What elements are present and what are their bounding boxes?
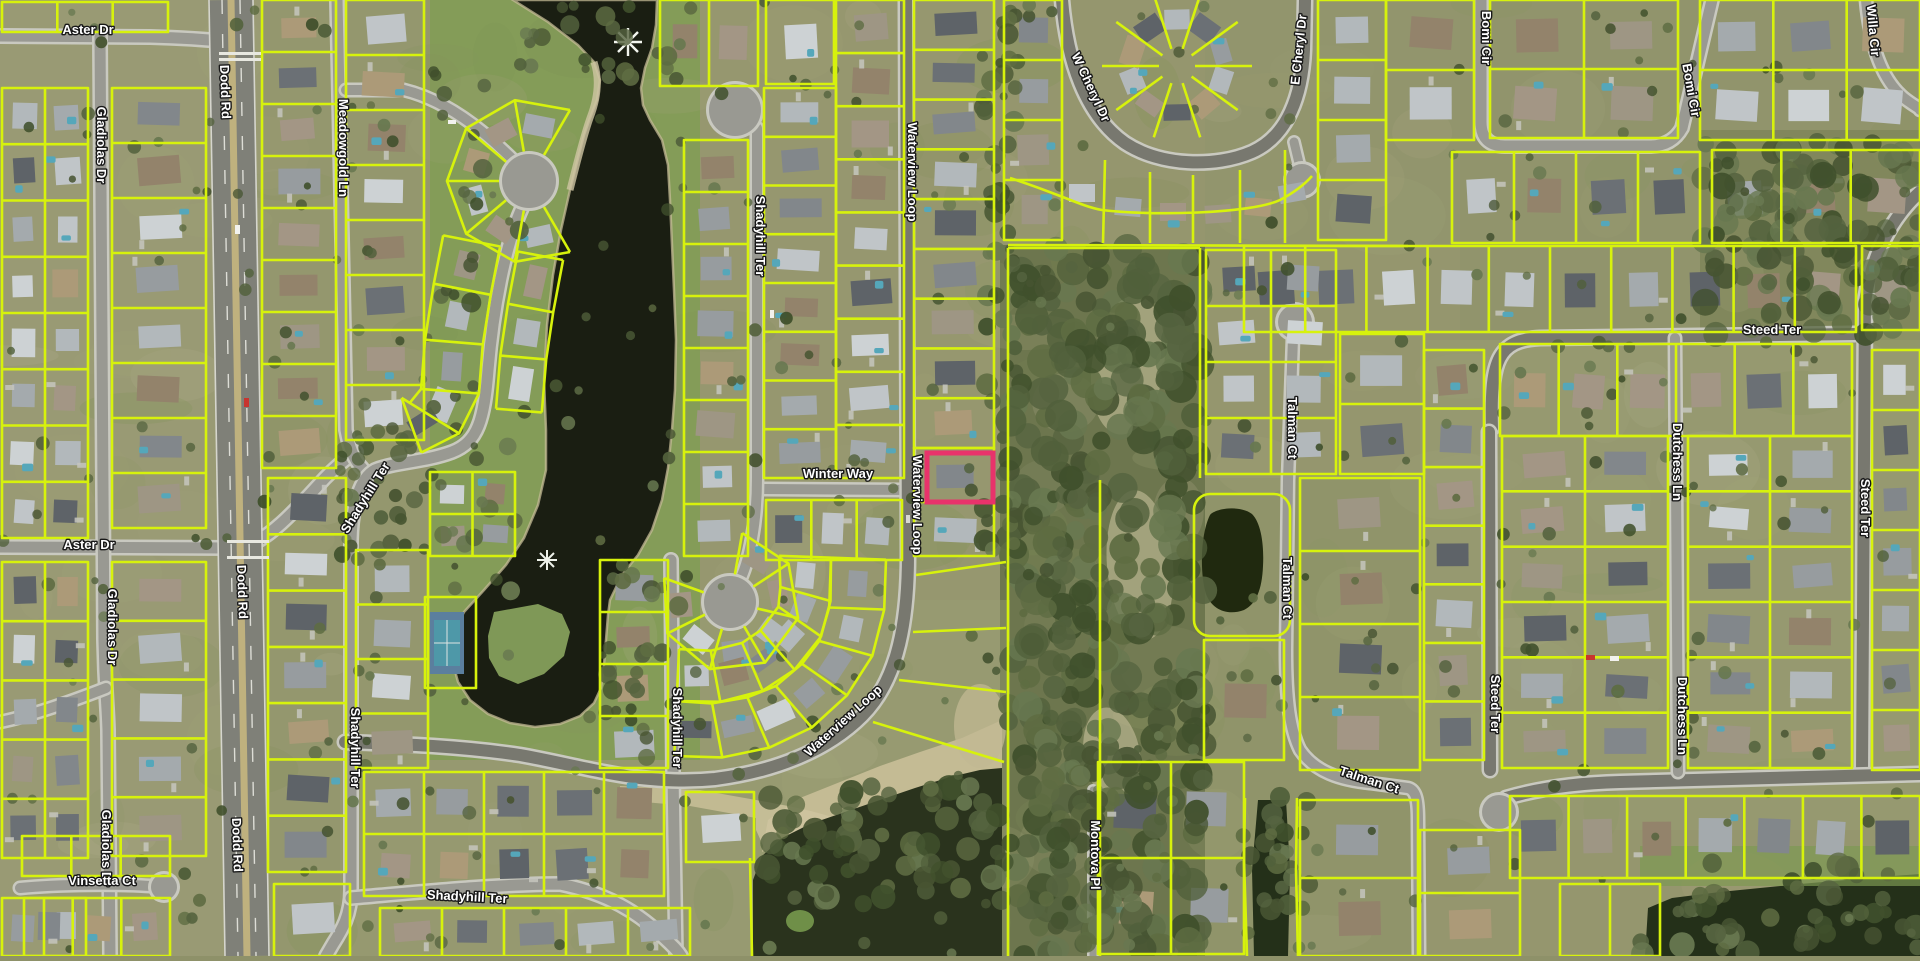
svg-text:Dodd Rd: Dodd Rd [217,65,234,120]
svg-text:Steed Ter: Steed Ter [1858,479,1873,537]
svg-text:Dodd Rd: Dodd Rd [234,565,251,620]
svg-text:Dodd Rd: Dodd Rd [229,818,246,873]
svg-text:Dutchess Ln: Dutchess Ln [1675,677,1690,755]
svg-text:Bomi Cir: Bomi Cir [1479,11,1494,65]
svg-text:Talman Ct: Talman Ct [1285,397,1300,460]
svg-text:Montova Pl: Montova Pl [1088,820,1103,889]
svg-text:Gladiolas Dr: Gladiolas Dr [94,107,109,184]
svg-text:Meadowgold Ln: Meadowgold Ln [336,99,351,197]
svg-text:Waterview Loop: Waterview Loop [905,122,920,221]
svg-text:Vinsetta Ct: Vinsetta Ct [68,873,136,888]
svg-text:Winter Way: Winter Way [803,466,874,481]
svg-text:Talman Ct: Talman Ct [1280,557,1295,620]
svg-text:Aster Dr: Aster Dr [62,22,113,37]
svg-text:Shadyhill Ter: Shadyhill Ter [753,196,768,277]
svg-text:Waterview Loop: Waterview Loop [910,455,925,554]
svg-text:Shadyhill Ter: Shadyhill Ter [670,688,685,769]
svg-text:Aster Dr: Aster Dr [63,537,114,552]
svg-text:Steed Ter: Steed Ter [1488,675,1503,733]
svg-text:Shadyhill Ter: Shadyhill Ter [348,708,363,789]
svg-text:Steed Ter: Steed Ter [1743,322,1801,337]
svg-text:Dutchess Ln: Dutchess Ln [1670,423,1685,501]
svg-text:Gladiolas Dr: Gladiolas Dr [105,589,120,666]
